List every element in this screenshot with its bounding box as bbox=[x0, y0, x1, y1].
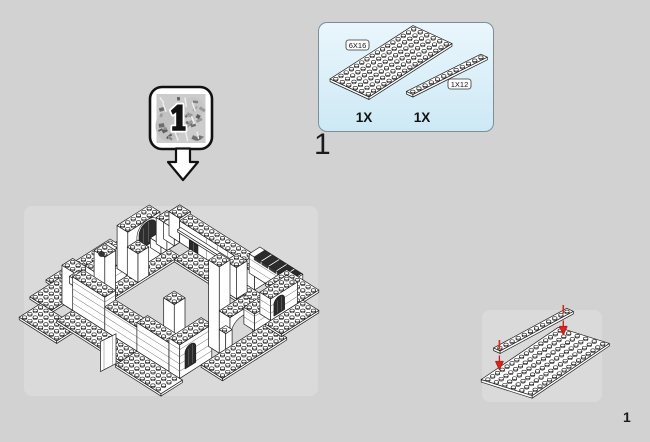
svg-text:1X: 1X bbox=[414, 110, 431, 125]
svg-text:1X: 1X bbox=[356, 110, 373, 125]
svg-text:6X16: 6X16 bbox=[349, 41, 367, 50]
svg-text:1X12: 1X12 bbox=[451, 80, 469, 89]
